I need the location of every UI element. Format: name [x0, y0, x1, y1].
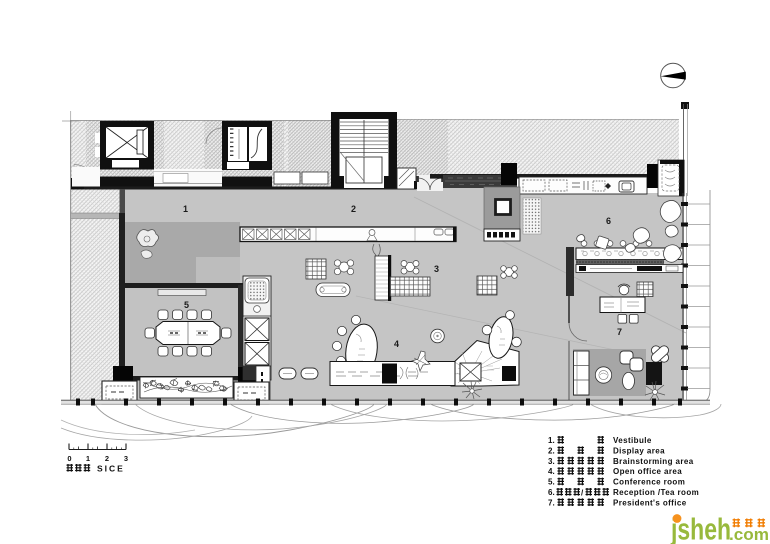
svg-text:1: 1 [183, 204, 188, 214]
svg-text:0: 0 [67, 454, 71, 463]
svg-text:6.: 6. [548, 488, 555, 497]
svg-text:.com: .com [729, 525, 769, 544]
svg-text:1: 1 [86, 454, 90, 463]
svg-text:4.: 4. [548, 467, 555, 476]
svg-text:5.: 5. [548, 478, 555, 487]
svg-text:Open office area: Open office area [613, 467, 682, 476]
svg-text:5: 5 [184, 300, 189, 310]
svg-text:6: 6 [606, 216, 611, 226]
svg-text:7: 7 [617, 327, 622, 337]
svg-text:SICE: SICE [97, 464, 125, 474]
svg-text:2: 2 [105, 454, 109, 463]
svg-text:Vestibule: Vestibule [613, 436, 652, 445]
svg-text:Brainstorming area: Brainstorming area [613, 457, 694, 466]
svg-text:7.: 7. [548, 498, 555, 507]
svg-text:1.: 1. [548, 436, 555, 445]
svg-text:Display area: Display area [613, 446, 665, 455]
svg-text:Conference room: Conference room [613, 478, 685, 487]
svg-text:3: 3 [434, 264, 439, 274]
svg-text:4: 4 [394, 339, 399, 349]
svg-text:3.: 3. [548, 457, 555, 466]
svg-text:2: 2 [351, 204, 356, 214]
svg-text:3: 3 [124, 454, 128, 463]
svg-text:President's office: President's office [613, 498, 687, 507]
svg-text:Reception /Tea room: Reception /Tea room [613, 488, 699, 497]
svg-text:2.: 2. [548, 446, 555, 455]
